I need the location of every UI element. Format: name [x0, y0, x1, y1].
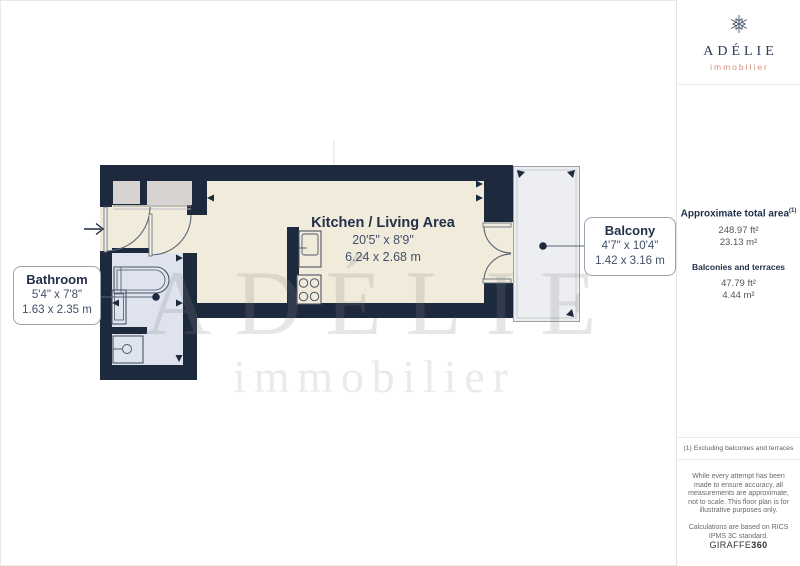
balconies-imperial: 47.79 ft²: [677, 278, 800, 290]
info-sidebar: ADÉLIE immobilier Approximate total area…: [676, 0, 800, 566]
footnote-marker: (1): [789, 208, 796, 214]
room-dims-imperial: 5'4" x 7'8": [17, 288, 97, 303]
area-stats: Approximate total area(1) 248.97 ft² 23.…: [677, 208, 800, 301]
total-area-label-text: Approximate total area: [681, 208, 789, 219]
entry-door-leaf: [104, 207, 107, 252]
balconies-metric: 4.44 m²: [677, 290, 800, 302]
balcony-dot: [539, 242, 547, 250]
total-area-imperial: 248.97 ft²: [677, 225, 800, 237]
disclaimer: While every attempt has been made to ens…: [686, 473, 791, 541]
provider-name: GIRAFFE: [709, 540, 751, 550]
brand-tagline: immobilier: [679, 62, 800, 72]
bathroom-label: Bathroom 5'4" x 7'8" 1.63 x 2.35 m: [13, 266, 101, 325]
floorplan-area: ADÉLIE immobilier Kitchen / Living Area …: [0, 0, 677, 566]
room-dims-metric: 1.63 x 2.35 m: [17, 303, 97, 318]
floorplan-page: ADÉLIE immobilier Kitchen / Living Area …: [0, 0, 800, 566]
brand-name: ADÉLIE: [681, 44, 800, 60]
brand-logo: ADÉLIE immobilier: [677, 0, 800, 85]
floorplan-svg: [0, 0, 677, 566]
room-dims-metric: 6.24 x 2.68 m: [283, 249, 483, 266]
standard-text: Calculations are based on RICS IPMS 3C s…: [686, 524, 791, 541]
balcony-door-leaf-bottom: [483, 279, 511, 283]
interior-door-leaf: [149, 214, 152, 256]
total-area-label: Approximate total area(1): [677, 208, 800, 219]
room-title: Kitchen / Living Area: [283, 214, 483, 232]
provider-logo: GIRAFFE360: [677, 540, 800, 550]
balcony-door-leaf-top: [483, 223, 511, 227]
room-title: Bathroom: [17, 272, 97, 288]
disclaimer-text: While every attempt has been made to ens…: [686, 473, 791, 516]
provider-suffix: 360: [751, 540, 767, 550]
room-dims-imperial: 4'7" x 10'4": [588, 239, 672, 254]
footnote: (1) Excluding balconies and terraces: [677, 437, 800, 460]
room-title: Balcony: [588, 223, 672, 239]
total-area-metric: 23.13 m²: [677, 237, 800, 249]
bathroom-dot: [152, 293, 160, 301]
balcony-deck: [514, 167, 580, 322]
balconies-label: Balconies and terraces: [677, 262, 800, 272]
balcony-label: Balcony 4'7" x 10'4" 1.42 x 3.16 m: [584, 217, 676, 276]
snowflake-icon: [728, 12, 750, 36]
kitchen-living-label: Kitchen / Living Area 20'5" x 8'9" 6.24 …: [283, 214, 483, 265]
room-dims-metric: 1.42 x 3.16 m: [588, 254, 672, 269]
room-dims-imperial: 20'5" x 8'9": [283, 232, 483, 249]
